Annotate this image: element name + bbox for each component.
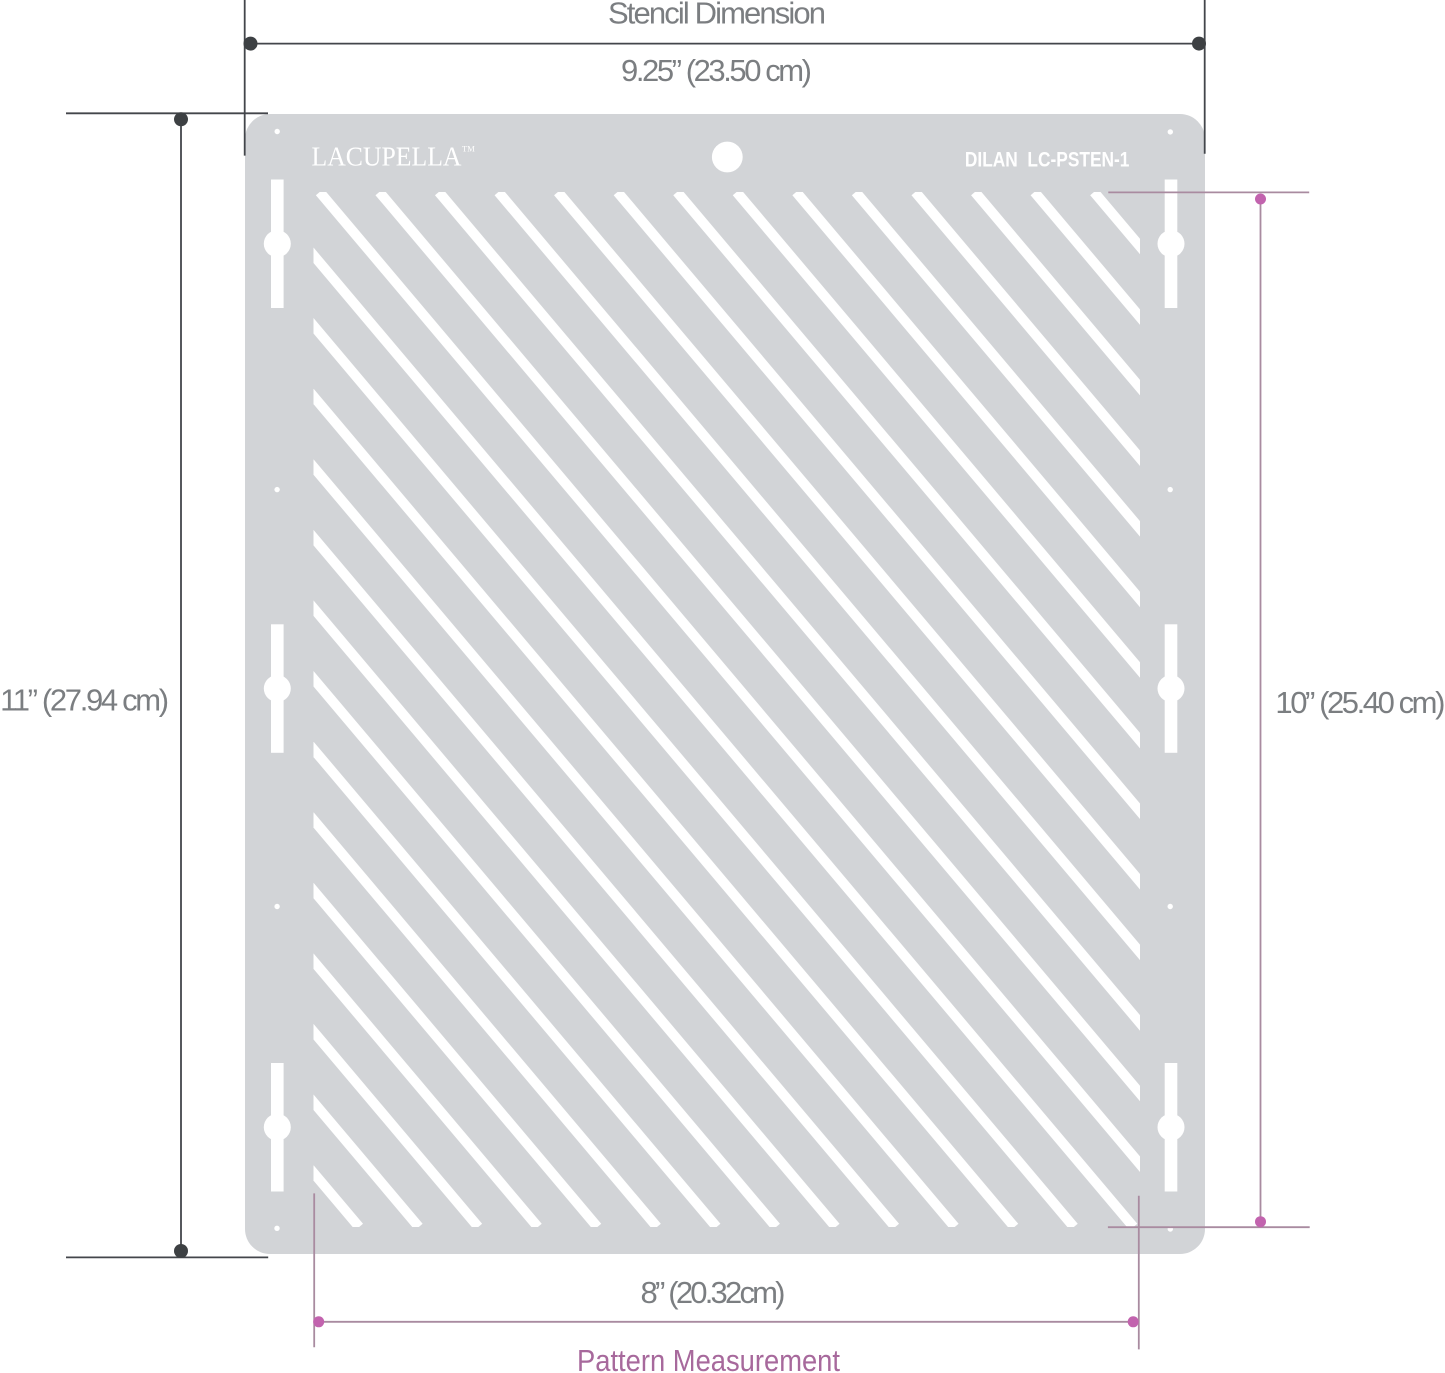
svg-text:LACUPELLA: LACUPELLA — [312, 141, 462, 172]
svg-text:TM: TM — [462, 144, 475, 154]
svg-text:9.25” (23.50 cm): 9.25” (23.50 cm) — [621, 53, 812, 88]
svg-text:8” (20.32cm): 8” (20.32cm) — [641, 1275, 786, 1310]
svg-text:10” (25.40 cm): 10” (25.40 cm) — [1275, 685, 1445, 720]
svg-text:Pattern Measurement: Pattern Measurement — [577, 1343, 840, 1373]
svg-text:Stencil Dimension: Stencil Dimension — [608, 0, 826, 30]
svg-text:DILAN LC-PSTEN-1: DILAN LC-PSTEN-1 — [965, 148, 1130, 171]
svg-text:11” (27.94 cm): 11” (27.94 cm) — [0, 683, 169, 718]
